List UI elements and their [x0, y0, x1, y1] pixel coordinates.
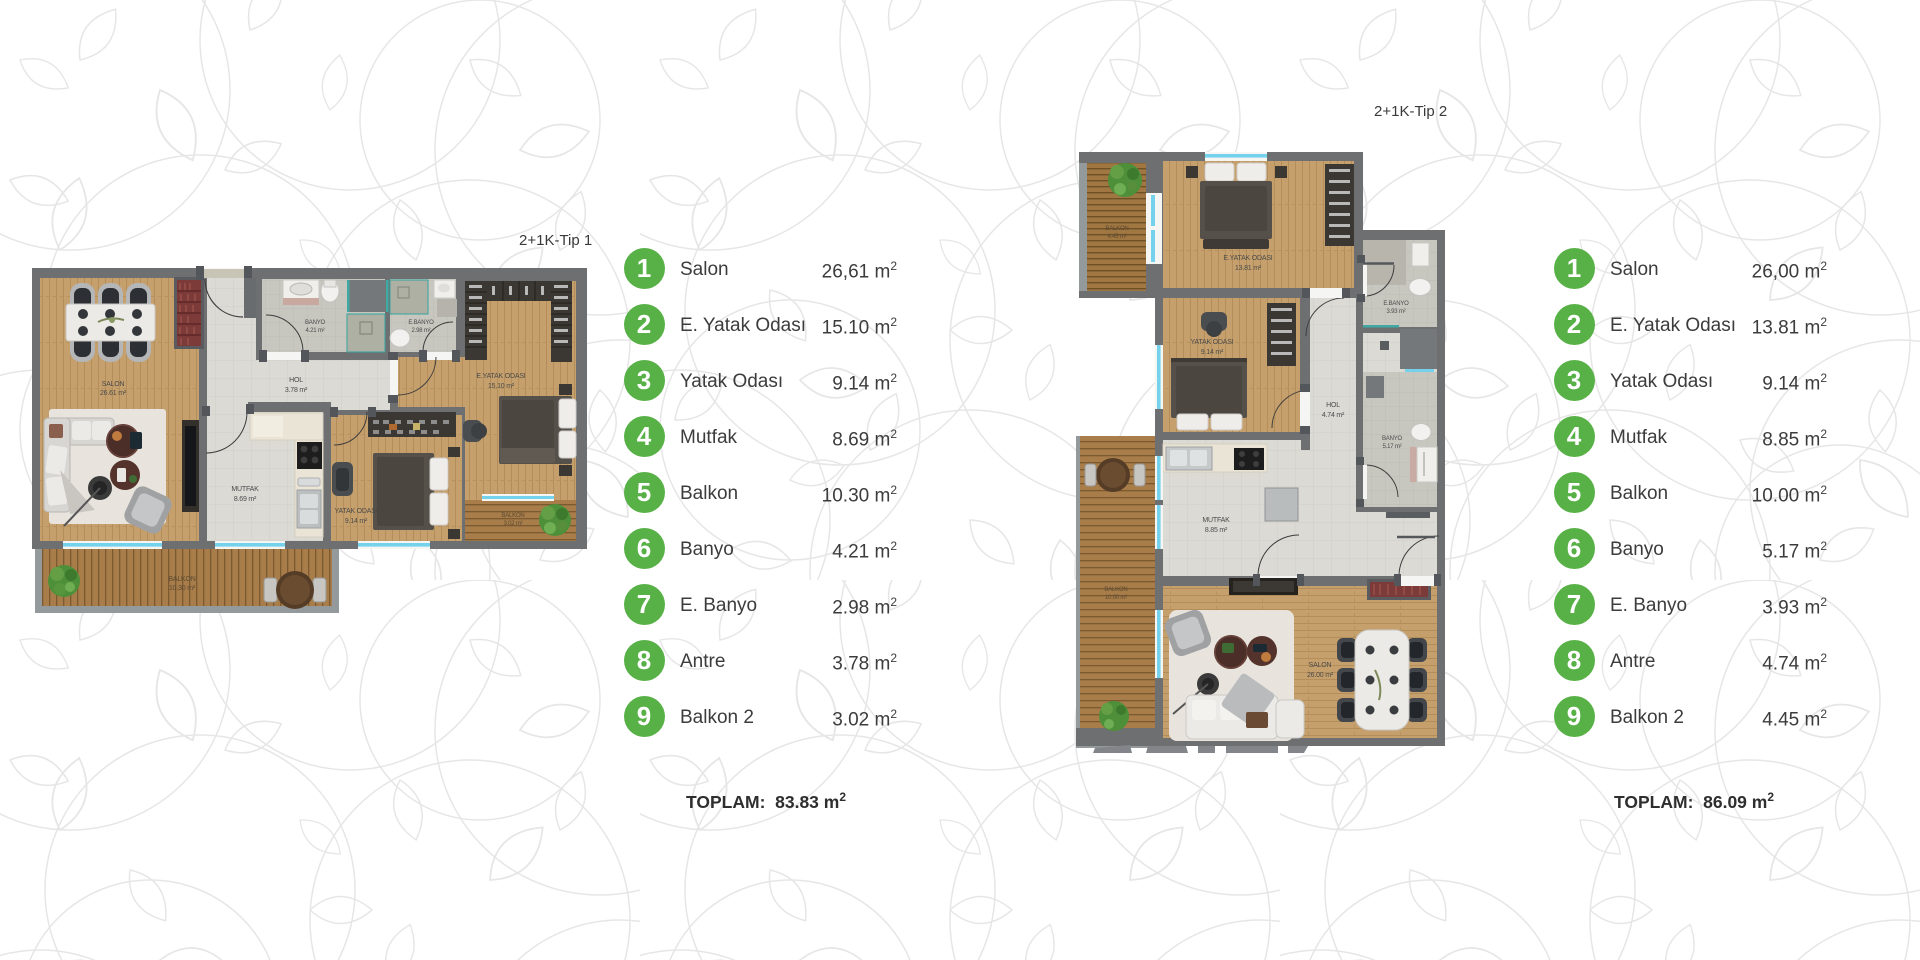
svg-text:2.98 m²: 2.98 m² [412, 328, 431, 334]
svg-text:4.74 m²: 4.74 m² [1322, 412, 1345, 419]
svg-text:26.61 m²: 26.61 m² [100, 390, 127, 397]
svg-text:MUTFAK: MUTFAK [1202, 517, 1230, 524]
svg-text:9.14 m²: 9.14 m² [345, 518, 368, 525]
svg-text:5.17 m²: 5.17 m² [1383, 444, 1402, 450]
svg-text:10.00 m²: 10.00 m² [1105, 595, 1127, 601]
svg-text:E.BANYO: E.BANYO [408, 320, 434, 326]
svg-text:15.10 m²: 15.10 m² [488, 383, 515, 390]
svg-text:BANYO: BANYO [305, 320, 326, 326]
svg-text:3.78 m²: 3.78 m² [285, 387, 308, 394]
svg-text:BALKON: BALKON [501, 513, 524, 519]
svg-text:SALON: SALON [102, 381, 125, 388]
svg-text:HOL: HOL [289, 377, 303, 384]
svg-text:E.YATAK ODASI: E.YATAK ODASI [1223, 255, 1272, 262]
svg-text:BALKON: BALKON [1105, 226, 1128, 232]
svg-text:10.30 m²: 10.30 m² [169, 585, 196, 592]
svg-text:BANYO: BANYO [1382, 436, 1403, 442]
svg-text:8.85 m²: 8.85 m² [1205, 527, 1228, 534]
svg-text:YATAK ODASI: YATAK ODASI [335, 508, 378, 515]
svg-text:8.69 m²: 8.69 m² [234, 496, 257, 503]
svg-text:BALKON: BALKON [168, 576, 195, 583]
svg-text:3.93 m²: 3.93 m² [1387, 309, 1406, 315]
svg-text:HOL: HOL [1326, 402, 1340, 409]
svg-text:9.14 m²: 9.14 m² [1201, 349, 1224, 356]
svg-text:4.45 m²: 4.45 m² [1108, 234, 1127, 240]
svg-text:BALKON: BALKON [1104, 587, 1127, 593]
svg-text:E.BANYO: E.BANYO [1383, 301, 1409, 307]
svg-text:3.02 m²: 3.02 m² [504, 521, 523, 527]
svg-text:26.00 m²: 26.00 m² [1307, 672, 1334, 679]
svg-text:4.21 m²: 4.21 m² [306, 328, 325, 334]
svg-text:E.YATAK ODASI: E.YATAK ODASI [476, 373, 525, 380]
svg-text:YATAK ODASI: YATAK ODASI [1191, 339, 1234, 346]
svg-text:SALON: SALON [1309, 662, 1332, 669]
svg-text:MUTFAK: MUTFAK [231, 486, 259, 493]
svg-text:13.81 m²: 13.81 m² [1235, 265, 1262, 272]
